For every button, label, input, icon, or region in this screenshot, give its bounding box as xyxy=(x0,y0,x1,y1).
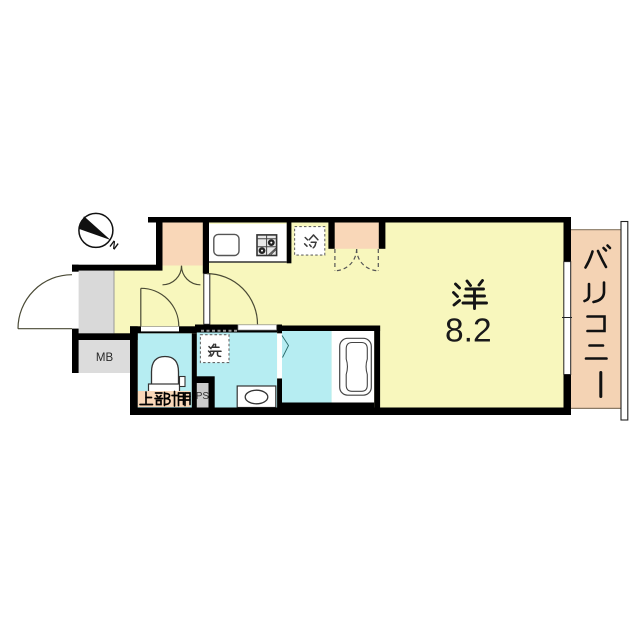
svg-text:MB: MB xyxy=(96,352,114,364)
svg-text:8.2: 8.2 xyxy=(445,312,492,349)
svg-text:PS: PS xyxy=(196,391,210,402)
